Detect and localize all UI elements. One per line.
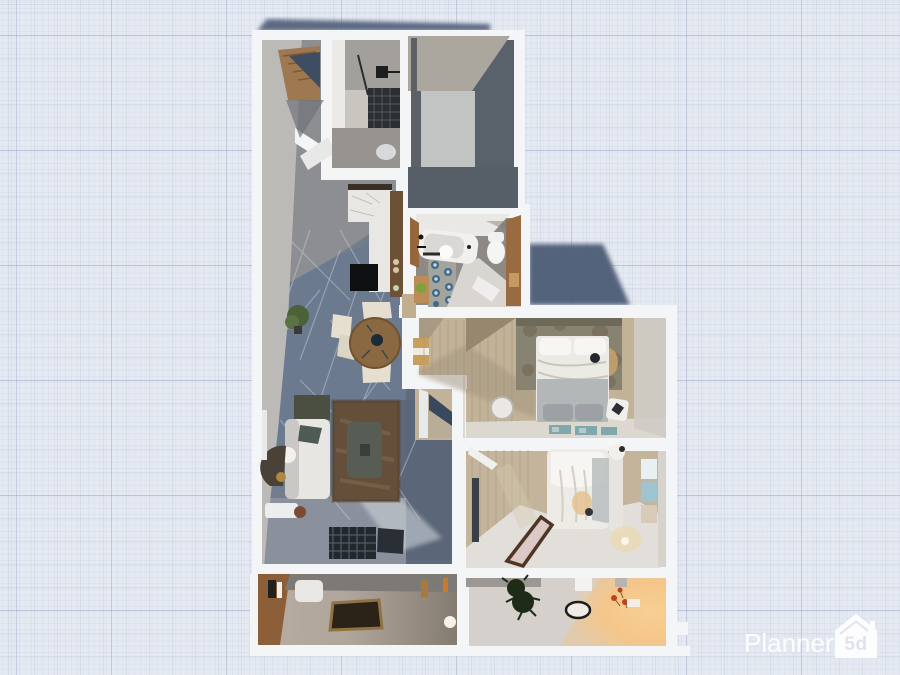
svg-text:5d: 5d	[844, 634, 867, 655]
svg-text:Planner: Planner	[744, 628, 834, 658]
